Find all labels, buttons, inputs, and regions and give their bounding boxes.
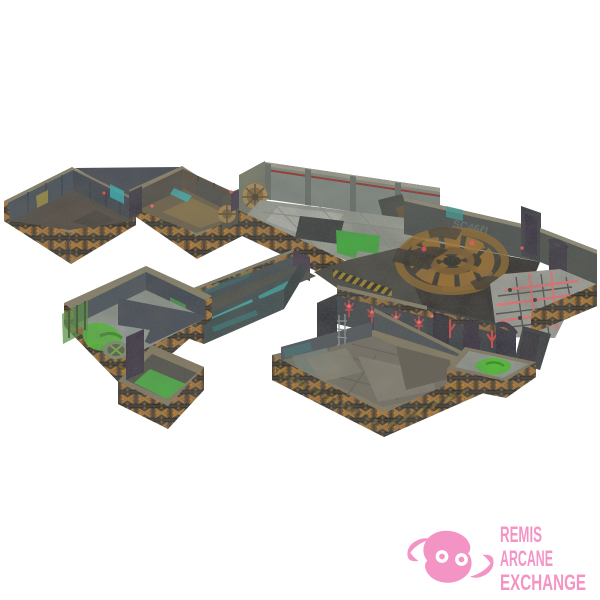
svg-text:ARCANE: ARCANE [500, 546, 553, 571]
svg-text:REMIS: REMIS [500, 522, 542, 547]
svg-text:EXCHANGE: EXCHANGE [500, 570, 586, 595]
